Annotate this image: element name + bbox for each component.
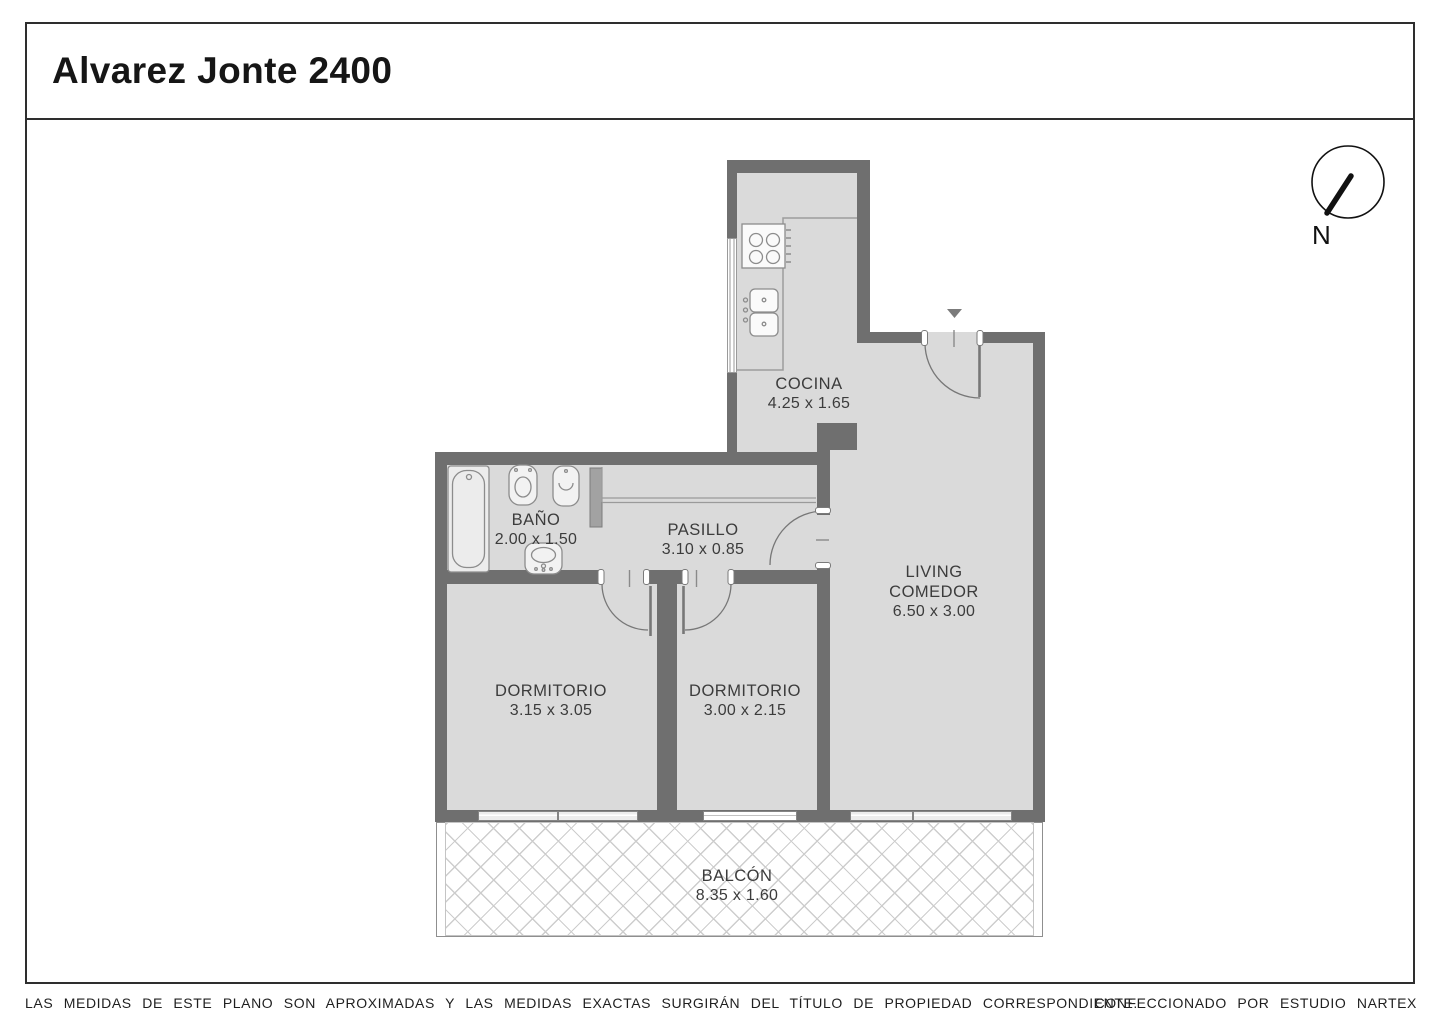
room-dims: 3.00 x 2.15 [689, 701, 801, 721]
wall-hall-top [435, 452, 828, 465]
wall-entry-left [857, 332, 925, 343]
wall-living-west-lower [817, 565, 830, 822]
room-dims: 3.15 x 3.05 [495, 701, 607, 721]
room-label-balcon: BALCÓN 8.35 x 1.60 [696, 866, 778, 906]
room-dims: 6.50 x 3.00 [889, 602, 979, 622]
room-dims: 2.00 x 1.50 [495, 530, 577, 550]
room-label-pasillo: PASILLO 3.10 x 0.85 [662, 520, 744, 560]
window-cocina [727, 238, 737, 373]
wall-living-east [1033, 332, 1045, 822]
wall-mid-a [435, 570, 601, 584]
room-name: PASILLO [662, 520, 744, 540]
room-name: LIVING [889, 562, 979, 582]
room-label-living-comedor: LIVING COMEDOR 6.50 x 3.00 [889, 562, 979, 622]
wall-living-west-upper [817, 450, 830, 515]
footer-credit: CONFECCIONADO POR ESTUDIO NARTEX [1095, 995, 1417, 1011]
room-name: BALCÓN [696, 866, 778, 886]
window-living-left [850, 811, 913, 821]
room-name: BAÑO [495, 510, 577, 530]
window-dorm2 [703, 811, 797, 821]
room-label-dormitorio-2: DORMITORIO 3.00 x 2.15 [689, 681, 801, 721]
page-title: Alvarez Jonte 2400 [52, 50, 392, 92]
room-name: DORMITORIO [495, 681, 607, 701]
floor-plan-sheet: Alvarez Jonte 2400 [0, 0, 1440, 1018]
window-dorm1-left [478, 811, 558, 821]
window-dorm1-right [558, 811, 638, 821]
title-separator-line [25, 118, 1415, 120]
wall-mid-c [731, 570, 830, 584]
room-label-cocina: COCINA 4.25 x 1.65 [768, 374, 850, 414]
room-name: COCINA [768, 374, 850, 394]
room-dims: 8.35 x 1.60 [696, 886, 778, 906]
wall-mid-b [646, 570, 685, 584]
north-label: N [1312, 220, 1331, 251]
window-living-right [913, 811, 1012, 821]
room-name: DORMITORIO [689, 681, 801, 701]
room-name: COMEDOR [889, 582, 979, 602]
floor-left-block [435, 452, 830, 822]
wall-cocina-right [857, 160, 870, 343]
wall-kitchen-step [817, 423, 857, 450]
room-dims: 3.10 x 0.85 [662, 540, 744, 560]
room-dims: 4.25 x 1.65 [768, 394, 850, 414]
footer-disclaimer: LAS MEDIDAS DE ESTE PLANO SON APROXIMADA… [25, 995, 1138, 1011]
room-label-dormitorio-1: DORMITORIO 3.15 x 3.05 [495, 681, 607, 721]
room-label-bano: BAÑO 2.00 x 1.50 [495, 510, 577, 550]
wall-west [435, 452, 447, 822]
wall-dorm-divider [657, 584, 677, 822]
wall-cocina-top [727, 160, 870, 173]
